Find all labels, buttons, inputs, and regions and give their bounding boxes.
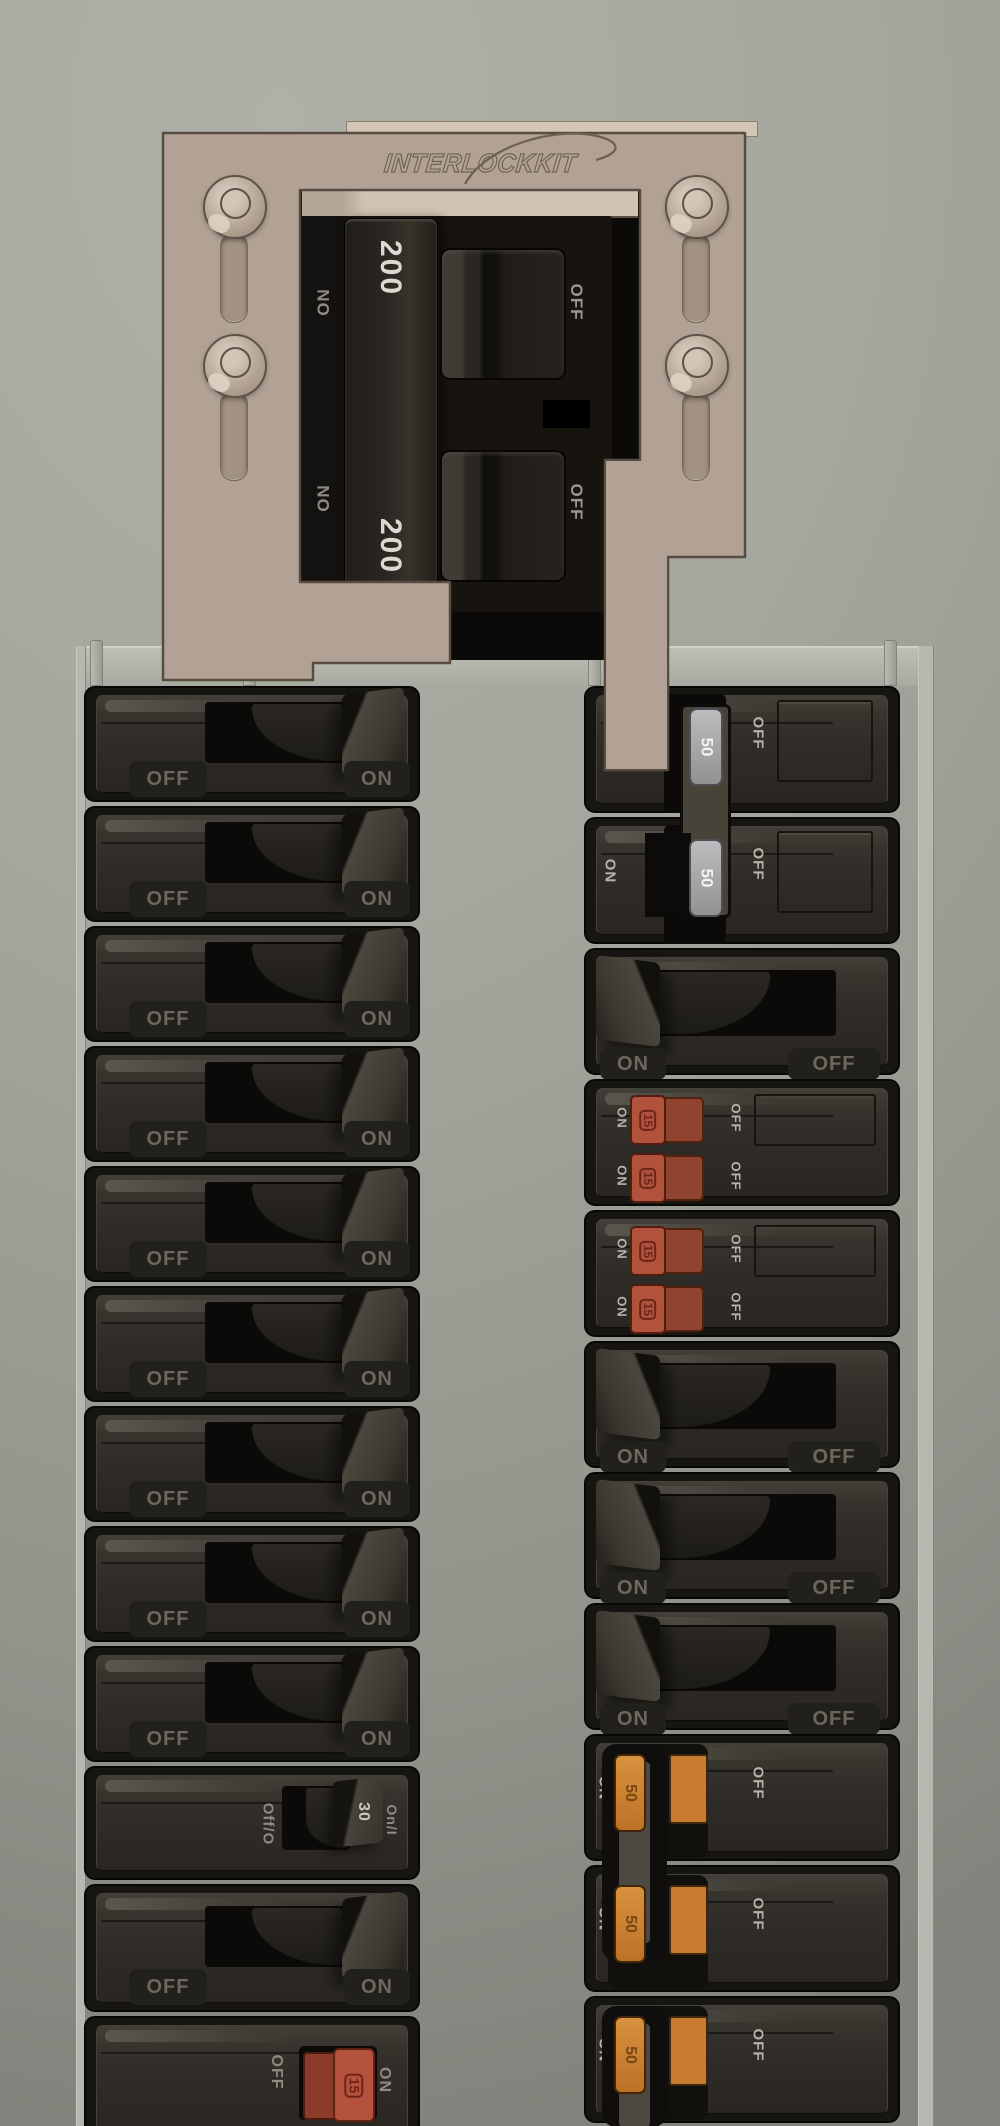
tandem-half: ON 15 OFF [586,1221,898,1277]
off-label: OFF [267,2055,285,2090]
breaker-body: ON OFF [584,1341,900,1468]
panel-tab [243,640,256,686]
breaker-body: OFF ON [84,1166,420,1282]
on-label: ON [344,1121,410,1157]
on-label: ON [344,881,410,917]
breaker-column-left: OFF ON OFF ON OFF ON OFF [84,684,420,2126]
breaker-right-4-tandem: ON 15 OFF ON 15 OFF [584,1077,900,1208]
on-label: ON [615,1107,630,1129]
handle-curve [647,1365,770,1427]
plate-adjustment-slot [682,391,710,481]
off-label: OFF [129,1969,207,2005]
breaker-handle[interactable]: 50 [614,2016,646,2094]
handle-curve [252,1304,342,1361]
plate-adjustment-slot [220,233,248,323]
handle-track [644,1363,836,1429]
on-label: On/I [384,1804,400,1835]
breaker-left-4: OFF ON [84,1044,420,1164]
off-label: OFF [788,1048,880,1080]
breaker-handle[interactable]: 50 [689,708,723,786]
plate-adjustment-slot [220,391,248,481]
main-on-label-1: ON [314,288,334,316]
on-label: ON [600,1572,666,1604]
handle-curve [252,1908,342,1965]
blank-pad [777,700,873,782]
handle-track [205,1302,345,1363]
breaker-body: OFF ON [84,1646,420,1762]
handle-tail [664,1228,704,1274]
breaker-right-7: ON OFF [584,1470,900,1601]
breaker-body: ON 15 OFF ON 15 OFF [584,1210,900,1337]
breaker-handle[interactable] [596,1479,660,1571]
amps-label: 15 [639,1298,656,1319]
handle-track [205,1662,345,1723]
main-breaker: 200 200 ON ON OFF OFF [302,216,612,612]
amps-label: 15 [344,2073,363,2097]
breaker-body: OFF ON [84,1406,420,1522]
on-label: ON [344,1361,410,1397]
on-label: ON [344,1481,410,1517]
breaker-body: ON 15 OFF ON 15 OFF [584,1079,900,1206]
handle-track [205,702,345,763]
amps-label: 50 [621,1915,639,1933]
blank-pad [754,1094,876,1146]
plate-adjustment-slot [682,233,710,323]
breaker-body: ON OFF [584,1472,900,1599]
off-label: OFF [129,1721,207,1757]
off-label: OFF [750,2029,767,2062]
breaker-left-11: OFF ON [84,1882,420,2014]
breaker-handle[interactable]: 15 [630,1226,666,1276]
off-label: OFF [129,881,207,917]
on-label: ON [344,1969,410,2005]
main-off-label-2: OFF [566,484,586,521]
on-label: ON [600,1441,666,1473]
on-label: ON [375,2067,393,2093]
handle-track [644,1494,836,1560]
on-label: ON [600,1048,666,1080]
handle-track [644,970,836,1036]
amps-label: 50 [621,1784,639,1802]
handle-curve [252,1664,342,1721]
blank-pad [754,1225,876,1277]
handle-tail [664,1097,704,1143]
off-label: OFF [729,1162,744,1191]
breaker-body: OFF 15 ON [84,2016,420,2126]
handle-curve [252,1064,342,1121]
breaker-right-6: ON OFF [584,1339,900,1470]
handle-body[interactable] [669,2016,708,2086]
amps-label: 30 [354,1802,372,1822]
off-label: OFF [129,761,207,797]
panel-tab [884,640,897,686]
breaker-handle[interactable]: 15 [630,1284,666,1334]
breaker-column-right: ON 50 OFF ON 50 OFF ON OFF [584,684,900,2126]
plate-screw [203,334,267,398]
breaker-left-3: OFF ON [84,924,420,1044]
main-on-label-2: ON [314,484,334,512]
breaker-left-2: OFF ON [84,804,420,924]
breaker-body: ON 50 OFF [584,817,900,944]
breaker-body: OFF ON [84,806,420,922]
breaker-right-1-50a: ON 50 OFF [584,684,900,815]
breaker-left-10-30a: Off/O 30 On/I [84,1764,420,1882]
plate-screw [203,175,267,239]
breaker-handle[interactable] [596,1348,660,1440]
on-label: ON [602,859,619,884]
breaker-left-9: OFF ON [84,1644,420,1764]
breaker-right-3: ON OFF [584,946,900,1077]
handle-curve [252,944,342,1001]
breaker-handle[interactable] [342,1891,404,1979]
handle-curve [252,824,342,881]
handle-body[interactable] [669,1885,708,1955]
plate-screw [665,175,729,239]
off-label: OFF [729,1104,744,1133]
off-label: OFF [129,1481,207,1517]
main-breaker-top-strip [302,190,638,218]
on-label: ON [602,728,619,753]
handle-curve [252,1184,342,1241]
breaker-handle[interactable]: 50 [614,1754,646,1832]
off-label: OFF [750,1898,767,1931]
on-label: ON [615,1238,630,1260]
plate-screw [665,334,729,398]
on-label: ON [600,1703,666,1735]
breaker-left-5: OFF ON [84,1164,420,1284]
breaker-handle[interactable] [596,1610,660,1702]
off-label: Off/O [260,1803,277,1846]
handle-body[interactable] [669,1754,708,1824]
on-label: ON [344,1721,410,1757]
breaker-right-2-50a: ON 50 OFF [584,815,900,946]
breaker-left-6: OFF ON [84,1284,420,1404]
panel-tab [90,640,103,686]
amps-label: 15 [639,1240,656,1261]
off-label: OFF [129,1601,207,1637]
breaker-body: OFF ON [84,926,420,1042]
breaker-body: OFF ON [84,1526,420,1642]
breaker-left-7: OFF ON [84,1404,420,1524]
breaker-body: OFF ON [84,1046,420,1162]
tandem-half: ON 15 OFF [586,1148,898,1204]
handle-track [205,942,345,1003]
handle-track [205,1182,345,1243]
handle-tail [664,1286,704,1332]
breaker-body: OFF ON [84,1884,420,2012]
breaker-body: ON 50 OFF [584,686,900,813]
breaker-left-1: OFF ON [84,684,420,804]
breaker-handle[interactable]: 15 [630,1153,666,1203]
breaker-left-8: OFF ON [84,1524,420,1644]
main-rocker-pad-2 [440,450,566,582]
breaker-body: Off/O 30 On/I [84,1766,420,1880]
on-label: ON [344,1241,410,1277]
main-off-label-1: OFF [566,284,586,321]
on-label: ON [615,1296,630,1318]
brand-logo: INTERLOCKKIT [338,149,622,185]
breaker-body: ON OFF [584,1603,900,1730]
amps-label: 50 [696,869,716,888]
amps-label: 15 [639,1167,656,1188]
handle-track [205,1422,345,1483]
panel-edge-right [918,646,934,2126]
off-label: OFF [750,717,767,750]
main-amps-label-1: 200 [373,240,407,296]
main-rocker-pad-1 [440,248,566,380]
blank-pad [777,831,873,913]
breaker-body: ON 50 OFF [584,1865,900,1992]
off-label: OFF [750,1767,767,1800]
breaker-left-12-15a: OFF 15 ON [84,2014,420,2126]
breaker-right-5-tandem: ON 15 OFF ON 15 OFF [584,1208,900,1339]
amps-label: 15 [639,1109,656,1130]
interlock-pin-notch [543,400,590,428]
breaker-body: OFF ON [84,686,420,802]
tandem-half: ON 15 OFF [586,1279,898,1335]
off-label: OFF [788,1441,880,1473]
breaker-right-8: ON OFF [584,1601,900,1732]
handle-track [205,1906,345,1967]
handle-curve [647,1627,770,1689]
amps-label: 50 [696,738,716,757]
breaker-handle[interactable]: 50 [689,839,723,917]
handle-track [205,1062,345,1123]
off-label: OFF [129,1121,207,1157]
main-breaker-mount-strip [346,121,758,137]
handle-curve [252,704,342,761]
off-label: OFF [729,1293,744,1322]
handle-tail [664,1155,704,1201]
off-label: OFF [750,848,767,881]
main-amps-label-2: 200 [373,518,407,574]
handle-curve [252,1544,342,1601]
handle-tie-bracket [645,833,691,917]
breaker-body: OFF ON [84,1286,420,1402]
off-label: OFF [729,1235,744,1264]
off-label: OFF [129,1241,207,1277]
handle-curve [252,1424,342,1481]
breaker-handle[interactable]: 50 [614,1885,646,1963]
breaker-body: ON OFF [584,948,900,1075]
off-label: OFF [788,1703,880,1735]
main-breaker-left-strip [302,216,346,612]
off-label: OFF [129,1361,207,1397]
handle-track [644,1625,836,1691]
handle-track [205,1542,345,1603]
on-label: ON [344,1001,410,1037]
handle-curve [647,1496,770,1558]
handle-curve [647,972,770,1034]
on-label: ON [344,1601,410,1637]
breaker-handle[interactable] [596,955,660,1047]
off-label: OFF [129,1001,207,1037]
on-label: ON [615,1165,630,1187]
breaker-handle[interactable]: 15 [333,2048,375,2122]
handle-track [205,822,345,883]
amps-label: 50 [621,2046,639,2064]
breaker-handle[interactable]: 15 [630,1095,666,1145]
breaker-panel: OFF ON OFF ON OFF ON OFF [0,0,1000,2126]
tandem-half: ON 15 OFF [586,1090,898,1146]
off-label: OFF [788,1572,880,1604]
on-label: ON [344,761,410,797]
